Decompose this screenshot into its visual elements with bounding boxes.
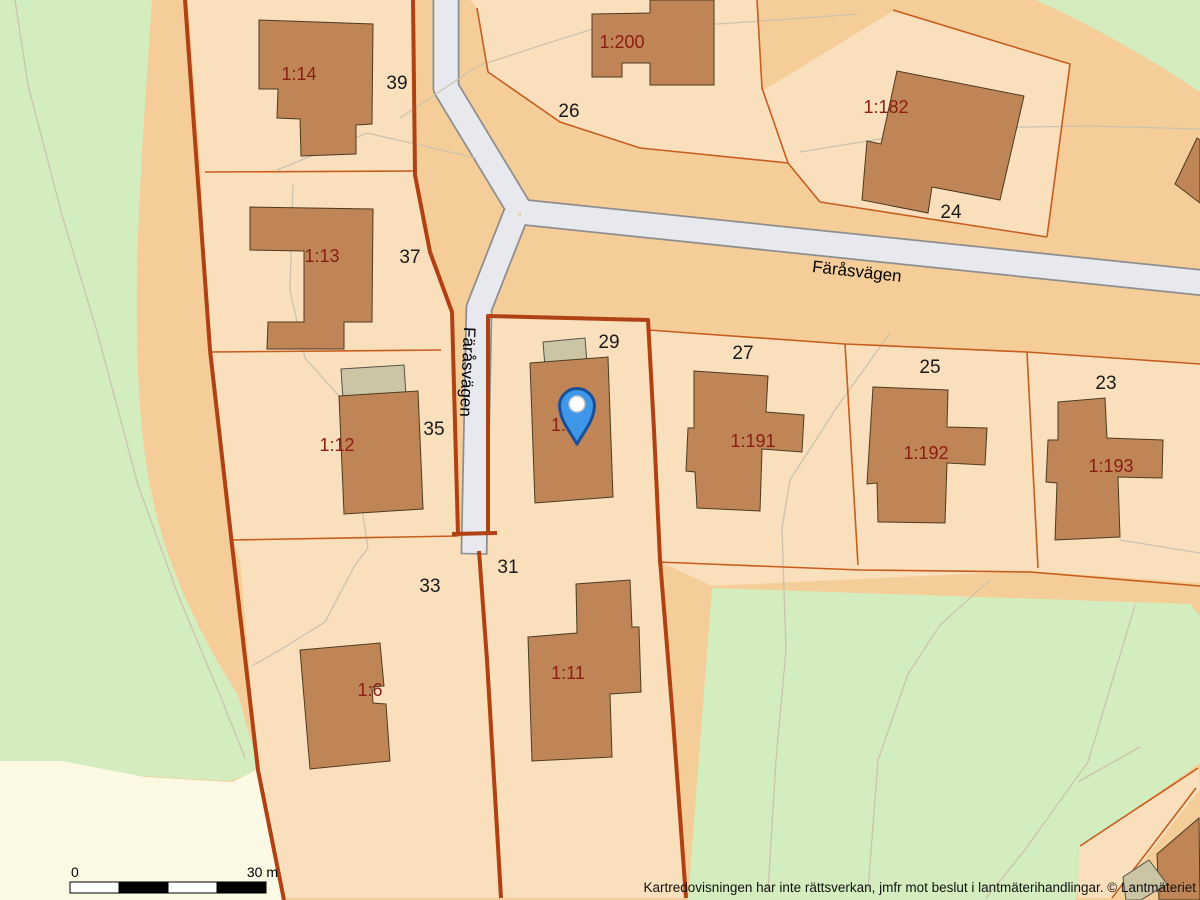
map-viewport: Färåsvägen Färåsvägen 1:14 1:13 1:12 1:6…: [0, 0, 1200, 900]
map-disclaimer: Kartredovisningen har inte rättsverkan, …: [644, 880, 1197, 895]
address-number: 26: [558, 101, 579, 122]
address-number: 23: [1095, 373, 1116, 394]
address-number: 35: [423, 419, 444, 440]
address-number: 33: [419, 576, 440, 597]
open-field: [0, 761, 284, 900]
building-1-6: [300, 643, 390, 769]
scale-start-label: 0: [71, 864, 79, 880]
parcel-label: 1:11: [551, 663, 585, 683]
address-number: 39: [386, 73, 407, 94]
address-number: 24: [940, 202, 962, 223]
address-number: 31: [497, 557, 518, 578]
address-number: 37: [399, 247, 420, 268]
parcel-label: 1:14: [281, 64, 316, 84]
scale-end-label: 30 m: [247, 864, 278, 880]
parcel-label: 1:12: [319, 435, 354, 455]
parcel-label: 1:191: [730, 431, 775, 451]
parcel-label: 1:13: [304, 246, 339, 266]
parcel-label: 1:192: [903, 443, 948, 463]
parcel-label: 1:200: [599, 32, 644, 52]
parcel-label: 1:182: [863, 97, 908, 117]
address-number: 27: [732, 343, 753, 364]
map-canvas[interactable]: Färåsvägen Färåsvägen 1:14 1:13 1:12 1:6…: [0, 0, 1200, 900]
parcel-label: 1:6: [357, 680, 382, 700]
road-name-label-vertical: Färåsvägen: [456, 327, 479, 418]
parcel-label: 1:193: [1088, 456, 1133, 476]
address-number: 25: [919, 357, 940, 378]
address-number: 29: [598, 332, 619, 353]
